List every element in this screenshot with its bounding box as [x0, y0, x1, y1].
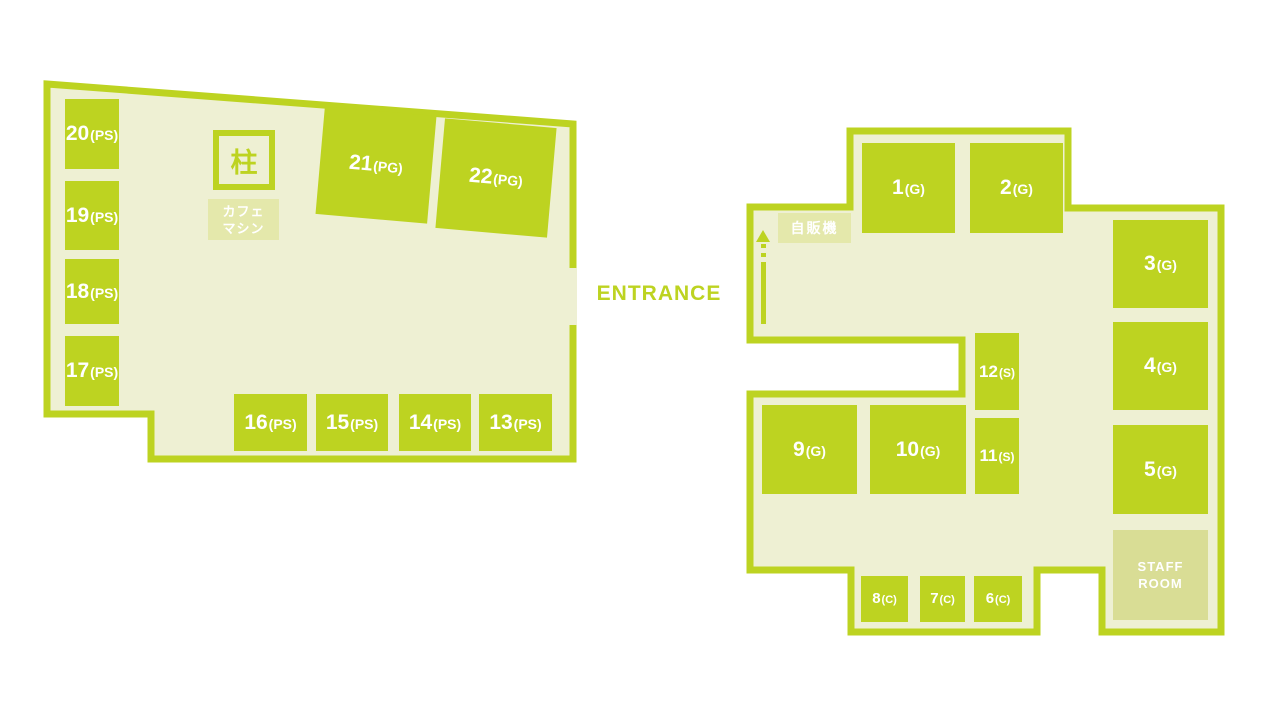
room-number: 3: [1144, 252, 1156, 275]
room-label: 21(PG): [348, 151, 404, 180]
room-suffix: (C): [995, 594, 1010, 606]
room-21: 21(PG): [316, 106, 437, 223]
entrance-label: ENTRANCE: [577, 282, 741, 306]
room-11: 11(S): [975, 418, 1019, 494]
room-number: 4: [1144, 354, 1156, 377]
room-label: 7(C): [930, 590, 955, 608]
pillar-box: 柱: [213, 130, 275, 190]
room-label: 17(PS): [66, 359, 118, 383]
room-16: 16(PS): [234, 394, 307, 451]
vending-machine-label: 自販機: [778, 213, 851, 243]
room-number: 18: [66, 280, 89, 303]
pillar-label: 柱: [231, 141, 258, 180]
room-suffix: (G): [1157, 257, 1177, 273]
room-3: 3(G): [1113, 220, 1208, 308]
room-suffix: (G): [920, 443, 940, 459]
room-number: 7: [930, 590, 938, 607]
room-suffix: (C): [882, 594, 897, 606]
room-5: 5(G): [1113, 425, 1208, 514]
vending-machine-text: 自販機: [791, 218, 839, 238]
room-suffix: (PG): [373, 158, 404, 177]
room-4: 4(G): [1113, 322, 1208, 410]
room-label: 20(PS): [66, 122, 118, 146]
room-suffix: (G): [905, 181, 925, 197]
staff-room: STAFF ROOM: [1113, 530, 1208, 620]
room-number: 2: [1000, 176, 1012, 199]
room-number: 9: [793, 438, 805, 461]
room-label: 10(G): [896, 438, 941, 462]
staff-room-line1: STAFF: [1138, 558, 1184, 575]
room-suffix: (PS): [514, 416, 542, 432]
room-number: 14: [409, 411, 432, 434]
floorplan-page: 20(PS) 19(PS) 18(PS) 17(PS) 16(PS) 15(PS…: [0, 0, 1270, 714]
room-label: 15(PS): [326, 411, 378, 435]
entrance-opening: [566, 268, 577, 325]
room-14: 14(PS): [399, 394, 471, 451]
room-9: 9(G): [762, 405, 857, 494]
room-number: 10: [896, 438, 919, 461]
room-label: 2(G): [1000, 176, 1033, 200]
room-number: 5: [1144, 458, 1156, 481]
room-number: 15: [326, 411, 349, 434]
room-label: 22(PG): [468, 164, 524, 193]
room-label: 18(PS): [66, 280, 118, 304]
room-label: 19(PS): [66, 204, 118, 228]
room-20: 20(PS): [65, 99, 119, 169]
room-label: 1(G): [892, 176, 925, 200]
room-suffix: (PG): [493, 171, 524, 190]
room-label: 4(G): [1144, 354, 1177, 378]
cafe-machine-line1: カフェ: [222, 203, 264, 220]
room-label: 13(PS): [489, 411, 541, 435]
staff-room-line2: ROOM: [1138, 575, 1182, 592]
arrow-dashed-tail: [761, 244, 766, 264]
room-2: 2(G): [970, 143, 1063, 233]
room-number: 16: [244, 411, 267, 434]
room-suffix: (PS): [90, 285, 118, 301]
room-suffix: (PS): [90, 127, 118, 143]
room-number: 20: [66, 122, 89, 145]
room-label: 6(C): [986, 590, 1011, 608]
room-suffix: (S): [998, 450, 1014, 464]
room-suffix: (C): [940, 594, 955, 606]
room-label: 8(C): [872, 590, 897, 608]
arrow-solid-tail: [761, 264, 766, 324]
room-15: 15(PS): [316, 394, 388, 451]
room-number: 17: [66, 359, 89, 382]
room-17: 17(PS): [65, 336, 119, 406]
room-label: 5(G): [1144, 458, 1177, 482]
room-number: 21: [348, 151, 373, 176]
room-suffix: (G): [1157, 359, 1177, 375]
room-suffix: (PS): [90, 209, 118, 225]
room-label: 14(PS): [409, 411, 461, 435]
room-label: 11(S): [980, 446, 1015, 466]
room-19: 19(PS): [65, 181, 119, 250]
room-6: 6(C): [974, 576, 1022, 622]
room-label: 9(G): [793, 438, 826, 462]
room-suffix: (PS): [90, 364, 118, 380]
room-18: 18(PS): [65, 259, 119, 324]
room-number: 19: [66, 204, 89, 227]
room-number: 12: [979, 362, 998, 381]
room-suffix: (G): [1013, 181, 1033, 197]
room-7: 7(C): [920, 576, 965, 622]
room-suffix: (PS): [433, 416, 461, 432]
room-13: 13(PS): [479, 394, 552, 451]
room-label: 12(S): [979, 362, 1015, 382]
room-number: 6: [986, 590, 994, 607]
floorplan-svg: [0, 0, 1270, 714]
room-suffix: (PS): [350, 416, 378, 432]
room-number: 22: [468, 164, 493, 189]
room-8: 8(C): [861, 576, 908, 622]
cafe-machine-label: カフェ マシン: [208, 199, 279, 240]
room-suffix: (S): [999, 366, 1015, 380]
room-22: 22(PG): [435, 118, 556, 237]
room-number: 8: [872, 590, 880, 607]
room-suffix: (PS): [269, 416, 297, 432]
room-1: 1(G): [862, 143, 955, 233]
arrow-up-icon: [756, 230, 770, 242]
room-label: 3(G): [1144, 252, 1177, 276]
room-number: 13: [489, 411, 512, 434]
room-suffix: (G): [1157, 463, 1177, 479]
room-12: 12(S): [975, 333, 1019, 410]
room-number: 11: [980, 446, 998, 465]
room-number: 1: [892, 176, 904, 199]
cafe-machine-line2: マシン: [222, 220, 264, 237]
room-suffix: (G): [806, 443, 826, 459]
entrance-direction-arrow: [756, 230, 770, 326]
room-10: 10(G): [870, 405, 966, 494]
room-label: 16(PS): [244, 411, 296, 435]
